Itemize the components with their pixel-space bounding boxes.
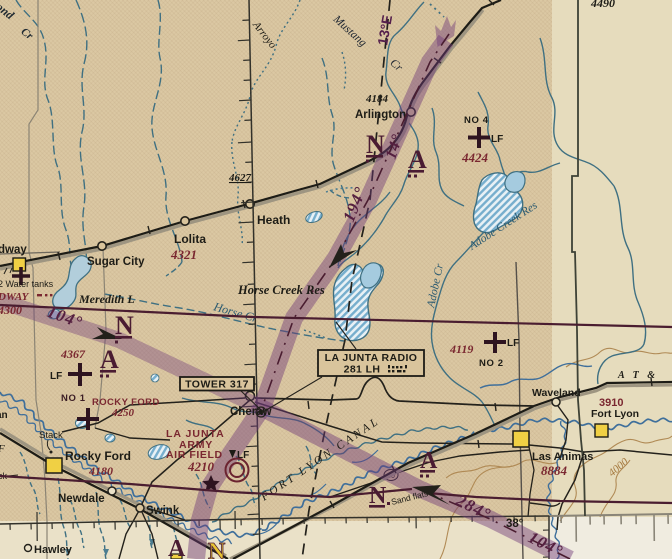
svg-text:4321: 4321 [170,247,197,262]
svg-text:an: an [0,410,8,421]
svg-text:4490: 4490 [590,0,615,10]
svg-text:Rocky Ford: Rocky Ford [65,449,131,463]
svg-text:Lolita: Lolita [174,232,206,246]
svg-text:2 Water tanks: 2 Water tanks [0,279,54,289]
svg-text:A: A [100,345,119,374]
svg-text:Waveland: Waveland [532,387,581,399]
svg-text:Heath: Heath [257,213,290,227]
svg-text:Arlington: Arlington [355,109,406,121]
svg-text:LF: LF [491,134,503,145]
svg-text:8884: 8884 [541,463,568,478]
svg-text:NO 4: NO 4 [464,115,489,126]
svg-text:A: A [168,536,186,559]
svg-text:4627: 4627 [228,172,252,184]
svg-text:4424: 4424 [461,150,489,165]
svg-text:TOWER 317: TOWER 317 [185,379,249,391]
svg-text:Stack: Stack [39,430,63,441]
svg-text:A: A [408,145,427,174]
svg-text:4119: 4119 [449,342,473,356]
svg-text:N: N [208,539,226,559]
svg-text:Las Animas: Las Animas [532,451,593,463]
svg-text:Meredith L: Meredith L [78,292,135,306]
svg-text:DWAY: DWAY [0,291,30,303]
svg-text:LF: LF [50,371,62,382]
svg-text:4180: 4180 [88,464,113,478]
svg-text:N: N [115,311,134,340]
svg-text:dway: dway [0,244,27,256]
svg-text:4367: 4367 [60,347,86,361]
svg-text:Sugar City: Sugar City [87,256,145,268]
svg-text:Hawley: Hawley [34,544,73,556]
svg-text:4250: 4250 [111,407,135,419]
svg-text:4184: 4184 [365,93,389,105]
svg-text:A T &: A T & [617,370,658,381]
svg-text:281 LH: 281 LH [344,364,381,376]
svg-text:LF: LF [507,338,519,349]
svg-text:Swink: Swink [146,505,180,517]
svg-text:Newdale: Newdale [58,493,105,505]
svg-text:NO 1: NO 1 [61,393,86,404]
svg-text:F: F [0,443,5,455]
svg-text:Fort Lyon: Fort Lyon [591,408,639,420]
svg-text:4210: 4210 [187,459,215,474]
svg-text:Cheraw: Cheraw [230,406,272,418]
svg-text:NO 2: NO 2 [479,358,504,369]
svg-text:LA JUNTA RADIO: LA JUNTA RADIO [325,352,418,364]
svg-text:N: N [366,130,385,159]
svg-text:Horse Creek Res: Horse Creek Res [237,283,325,297]
